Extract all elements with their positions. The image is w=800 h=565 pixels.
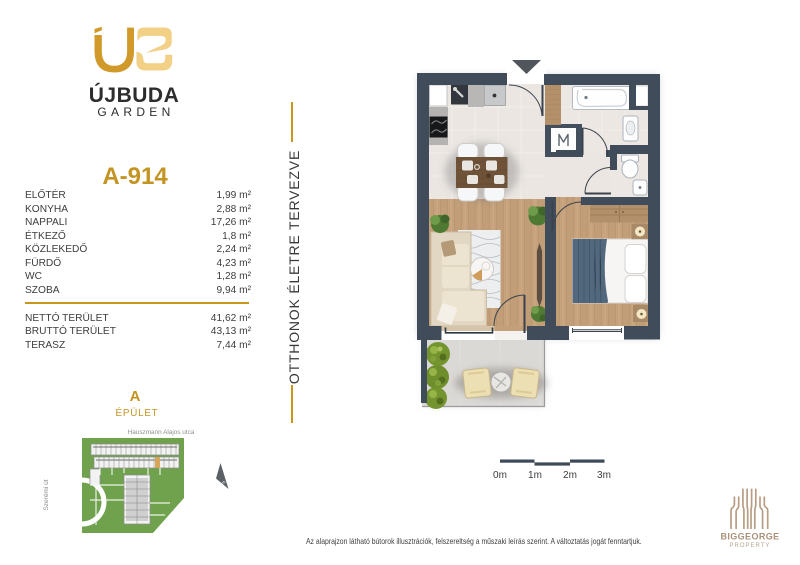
svg-text:0m: 0m bbox=[493, 470, 507, 481]
svg-text:Hauszmann Alajos utca: Hauszmann Alajos utca bbox=[128, 429, 195, 436]
svg-text:3m: 3m bbox=[597, 470, 611, 481]
svg-text:PROPERTY: PROPERTY bbox=[730, 543, 771, 549]
svg-text:Szerémi út: Szerémi út bbox=[43, 479, 50, 510]
svg-text:2m: 2m bbox=[563, 470, 577, 481]
svg-text:1m: 1m bbox=[528, 470, 542, 481]
svg-text:BIGGEORGE: BIGGEORGE bbox=[720, 532, 779, 542]
